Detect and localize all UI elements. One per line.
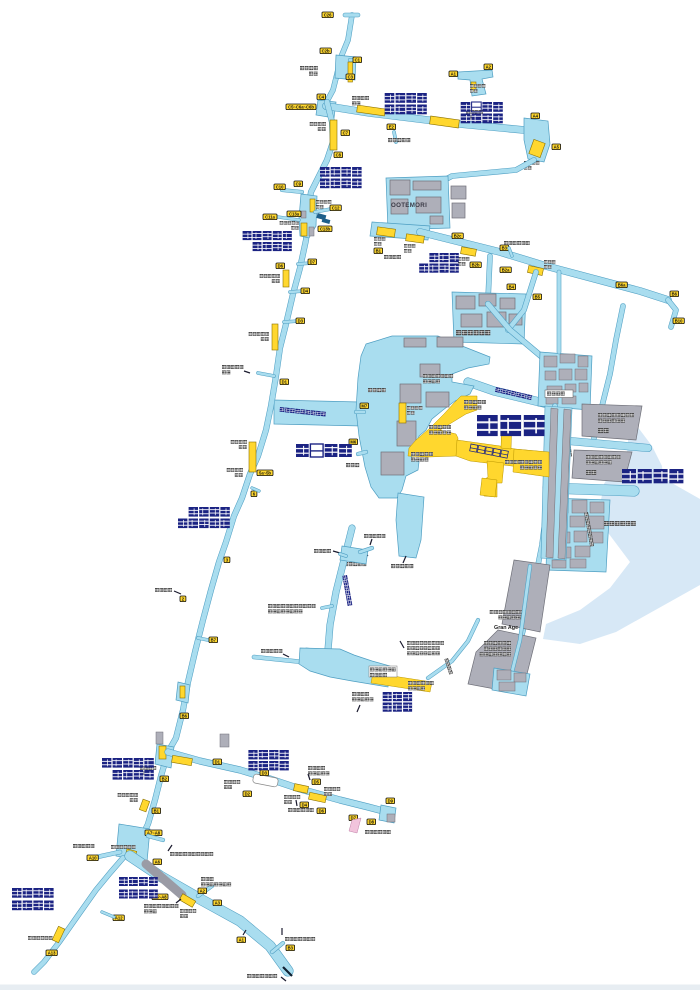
- svg-text:A10: A10: [89, 855, 97, 860]
- svg-text:C7: C7: [343, 130, 349, 135]
- svg-text:A4: A4: [533, 113, 539, 118]
- svg-text:D7: D7: [310, 259, 316, 264]
- svg-text:B6: B6: [182, 713, 188, 718]
- svg-text:M6: M6: [350, 439, 356, 444]
- svg-text:D6: D6: [278, 263, 284, 268]
- svg-text:B4: B4: [509, 284, 515, 289]
- svg-text:B1: B1: [154, 808, 160, 813]
- svg-text:B7: B7: [211, 637, 217, 642]
- svg-text:A1: A1: [451, 71, 457, 76]
- svg-text:B5: B5: [535, 294, 541, 299]
- svg-text:B2b: B2b: [472, 262, 480, 267]
- svg-text:D2: D2: [245, 791, 251, 796]
- svg-text:C2b: C2b: [322, 48, 330, 53]
- svg-text:C9: C9: [296, 181, 302, 186]
- svg-text:B1: B1: [376, 248, 382, 253]
- svg-text:B6a: B6a: [618, 282, 626, 287]
- svg-text:OOTEMORI: OOTEMORI: [391, 202, 427, 209]
- svg-text:D4: D4: [302, 802, 308, 807]
- svg-text:B6: B6: [672, 291, 678, 296]
- svg-text:A13: A13: [48, 950, 56, 955]
- svg-text:A6: A6: [155, 859, 161, 864]
- svg-text:M7: M7: [361, 403, 367, 408]
- svg-text:D8: D8: [369, 819, 375, 824]
- svg-text:C5~C6a~C6b: C5~C6a~C6b: [288, 104, 314, 109]
- svg-text:D1: D1: [282, 379, 288, 384]
- svg-text:A12: A12: [115, 915, 123, 920]
- svg-text:D3: D3: [262, 770, 268, 775]
- svg-text:C13a: C13a: [289, 211, 300, 216]
- svg-text:5a~5b: 5a~5b: [259, 470, 271, 475]
- svg-text:A5: A5: [554, 144, 560, 149]
- svg-text:C10: C10: [276, 184, 284, 189]
- svg-text:D6: D6: [319, 808, 325, 813]
- svg-text:C26: C26: [324, 12, 332, 17]
- svg-text:E2: E2: [389, 124, 395, 129]
- svg-text:D1: D1: [215, 759, 221, 764]
- svg-text:B2a: B2a: [502, 267, 510, 272]
- svg-text:C11a: C11a: [265, 214, 275, 219]
- svg-text:A1: A1: [239, 937, 245, 942]
- svg-text:B2c: B2c: [454, 233, 462, 238]
- svg-text:A3: A3: [215, 900, 221, 905]
- svg-text:B3: B3: [502, 245, 508, 250]
- svg-text:D3: D3: [298, 318, 304, 323]
- svg-text:B2: B2: [162, 776, 168, 781]
- svg-text:D5: D5: [314, 779, 320, 784]
- svg-text:C13b: C13b: [320, 226, 331, 231]
- svg-text:D9: D9: [388, 798, 394, 803]
- svg-text:C3: C3: [348, 74, 354, 79]
- svg-text:C1: C1: [355, 57, 361, 62]
- svg-text:A2: A2: [486, 64, 492, 69]
- svg-text:C12: C12: [332, 205, 340, 210]
- svg-text:B3: B3: [288, 945, 294, 950]
- svg-text:D4: D4: [303, 288, 309, 293]
- svg-text:B10: B10: [675, 318, 683, 323]
- svg-text:A2: A2: [200, 888, 206, 893]
- svg-text:C4: C4: [319, 94, 325, 99]
- svg-text:C8: C8: [336, 152, 342, 157]
